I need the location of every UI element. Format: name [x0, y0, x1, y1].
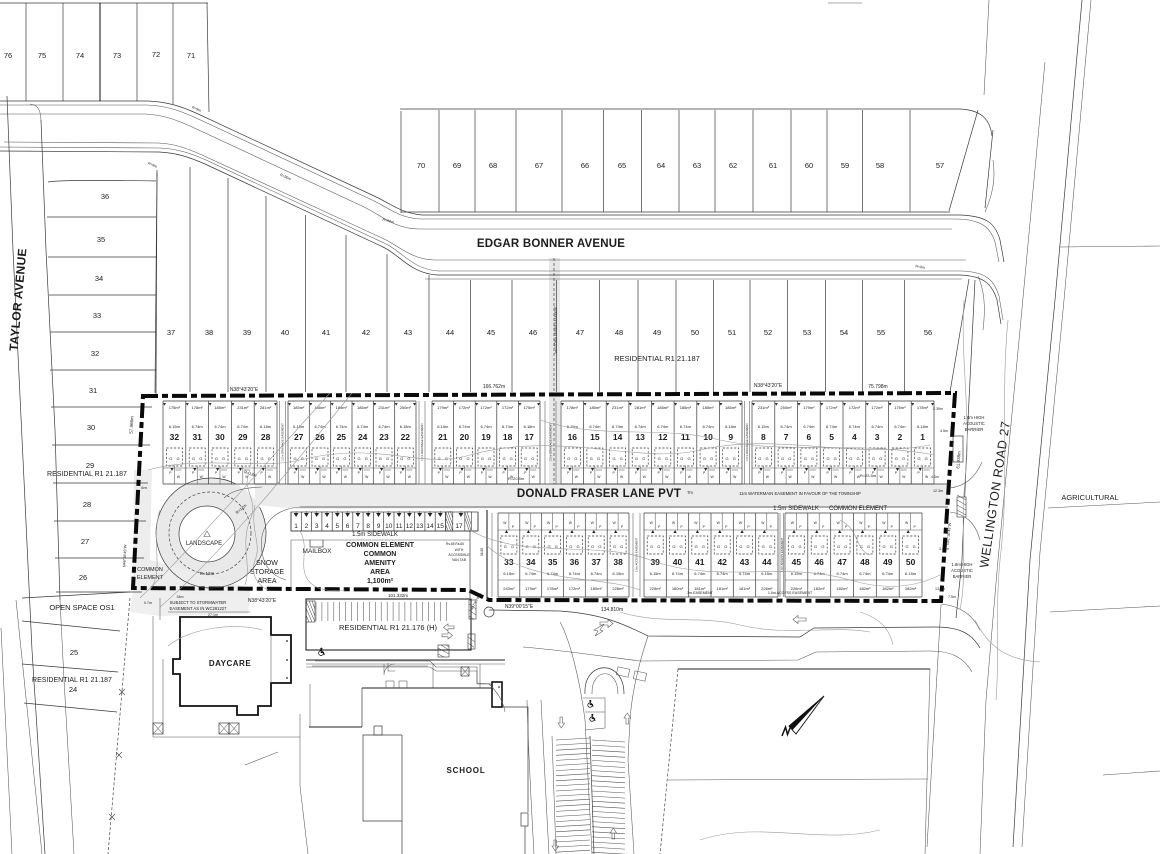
svg-text:13: 13: [635, 432, 645, 442]
svg-text:35: 35: [97, 235, 105, 244]
svg-text:G: G: [687, 456, 690, 461]
svg-text:231m²: 231m²: [237, 405, 249, 410]
svg-text:75.798m: 75.798m: [868, 384, 887, 390]
svg-text:185m²: 185m²: [589, 405, 601, 410]
svg-text:N38°43'20"E: N38°43'20"E: [754, 383, 783, 389]
svg-text:G: G: [386, 456, 389, 461]
svg-text:14: 14: [426, 523, 434, 530]
svg-text:48: 48: [615, 328, 623, 337]
svg-text:16: 16: [568, 432, 578, 442]
svg-text:53: 53: [803, 328, 811, 337]
svg-text:42: 42: [362, 328, 370, 337]
svg-text:G: G: [895, 456, 898, 461]
svg-text:65: 65: [618, 161, 626, 170]
svg-text:G: G: [765, 456, 768, 461]
svg-text:38: 38: [613, 557, 623, 567]
svg-text:36: 36: [570, 557, 580, 567]
svg-text:G: G: [844, 544, 847, 549]
svg-text:182m²: 182m²: [882, 586, 894, 591]
svg-text:G: G: [379, 456, 382, 461]
svg-text:181m²: 181m²: [717, 586, 729, 591]
svg-text:WITH: WITH: [455, 548, 464, 552]
svg-text:243m²: 243m²: [503, 586, 515, 591]
svg-text:COMMON ELEMENT: COMMON ELEMENT: [346, 542, 415, 549]
svg-text:186m²: 186m²: [725, 405, 737, 410]
svg-text:50: 50: [691, 328, 699, 337]
svg-text:R=20.5m: R=20.5m: [508, 476, 525, 481]
svg-text:63: 63: [693, 161, 701, 170]
svg-text:50: 50: [906, 557, 916, 567]
svg-text:15: 15: [437, 523, 445, 530]
svg-text:134.810m: 134.810m: [601, 607, 623, 613]
svg-text:226m²: 226m²: [612, 586, 624, 591]
svg-text:175m²: 175m²: [524, 405, 536, 410]
svg-text:67: 67: [535, 161, 543, 170]
svg-text:ACCESSIBLE: ACCESSIBLE: [448, 553, 470, 557]
svg-text:6.74m: 6.74m: [502, 424, 514, 429]
svg-text:34: 34: [526, 557, 536, 567]
svg-text:BARRIER: BARRIER: [953, 574, 972, 579]
svg-text:G: G: [524, 456, 527, 461]
svg-text:G: G: [798, 544, 801, 549]
svg-text:37: 37: [591, 557, 601, 567]
svg-text:172m²: 172m²: [826, 405, 838, 410]
svg-text:15: 15: [590, 432, 600, 442]
svg-text:G: G: [804, 456, 807, 461]
svg-text:6.18m: 6.18m: [725, 424, 737, 429]
svg-text:G: G: [733, 456, 736, 461]
svg-text:6.18m: 6.18m: [400, 424, 412, 429]
svg-text:STORAGE: STORAGE: [250, 569, 284, 576]
svg-text:22: 22: [401, 432, 411, 442]
svg-text:G: G: [294, 456, 297, 461]
svg-text:1m STORM SEWER EASEMENT: 1m STORM SEWER EASEMENT: [554, 306, 558, 354]
svg-text:54: 54: [840, 328, 848, 337]
svg-text:45: 45: [792, 557, 802, 567]
svg-text:6.74m: 6.74m: [569, 571, 581, 576]
svg-text:G: G: [301, 456, 304, 461]
svg-text:182m²: 182m²: [836, 586, 848, 591]
svg-text:27: 27: [294, 432, 304, 442]
svg-text:6.74m: 6.74m: [826, 424, 838, 429]
svg-text:7m: 7m: [687, 490, 693, 495]
svg-text:G: G: [658, 456, 661, 461]
svg-text:182m²: 182m²: [814, 586, 826, 591]
svg-text:G: G: [598, 544, 601, 549]
svg-text:ACOUSTIC: ACOUSTIC: [963, 421, 985, 426]
svg-text:G: G: [612, 456, 615, 461]
svg-text:6.74m: 6.74m: [612, 424, 624, 429]
svg-text:179m²: 179m²: [525, 586, 537, 591]
svg-text:COMMON: COMMON: [364, 551, 397, 558]
svg-text:G: G: [703, 456, 706, 461]
svg-text:70: 70: [417, 161, 425, 170]
svg-text:6: 6: [346, 523, 350, 530]
svg-text:G: G: [591, 544, 594, 549]
svg-text:23: 23: [379, 432, 389, 442]
svg-text:7.5m: 7.5m: [948, 595, 956, 599]
svg-text:G: G: [913, 544, 916, 549]
svg-text:6.74m: 6.74m: [314, 424, 326, 429]
svg-text:G: G: [531, 456, 534, 461]
svg-text:34m: 34m: [177, 595, 184, 599]
svg-text:17: 17: [524, 432, 534, 442]
svg-text:G: G: [245, 456, 248, 461]
svg-text:G: G: [917, 456, 920, 461]
svg-text:ACOUSTIC: ACOUSTIC: [951, 568, 973, 573]
svg-text:6.74m: 6.74m: [657, 424, 669, 429]
svg-text:6.15m: 6.15m: [905, 571, 917, 576]
svg-text:61: 61: [769, 161, 777, 170]
svg-text:6.74m: 6.74m: [859, 571, 871, 576]
svg-text:29: 29: [238, 432, 248, 442]
svg-text:37: 37: [167, 328, 175, 337]
svg-text:AREA: AREA: [257, 578, 276, 585]
svg-text:G: G: [365, 456, 368, 461]
svg-text:46: 46: [529, 328, 537, 337]
svg-text:71: 71: [187, 51, 195, 60]
svg-text:8: 8: [366, 523, 370, 530]
svg-text:185m²: 185m²: [657, 405, 669, 410]
svg-text:24: 24: [358, 432, 368, 442]
svg-text:6.74m: 6.74m: [694, 571, 706, 576]
svg-text:G: G: [192, 456, 195, 461]
svg-text:185m²: 185m²: [214, 405, 226, 410]
svg-text:42: 42: [717, 557, 727, 567]
svg-text:G: G: [834, 456, 837, 461]
svg-text:6.74m: 6.74m: [781, 424, 793, 429]
svg-text:G: G: [680, 456, 683, 461]
svg-text:7: 7: [784, 432, 789, 442]
svg-text:33: 33: [93, 311, 101, 320]
svg-text:12.3m: 12.3m: [933, 489, 943, 493]
svg-text:G: G: [533, 544, 536, 549]
svg-text:RESIDENTIAL R1 21.187: RESIDENTIAL R1 21.187: [47, 471, 127, 478]
svg-text:26: 26: [315, 432, 325, 442]
svg-text:64: 64: [657, 161, 665, 170]
svg-text:6.74m: 6.74m: [459, 424, 471, 429]
svg-text:G: G: [872, 456, 875, 461]
svg-text:57.966m: 57.966m: [129, 416, 135, 434]
svg-text:G: G: [695, 544, 698, 549]
svg-text:G: G: [481, 456, 484, 461]
svg-text:EDGAR BONNER AVENUE: EDGAR BONNER AVENUE: [477, 238, 625, 250]
svg-text:47: 47: [837, 557, 847, 567]
svg-text:180m²: 180m²: [591, 586, 603, 591]
svg-text:G: G: [710, 456, 713, 461]
svg-text:43: 43: [404, 328, 412, 337]
svg-text:RESIDENTIAL R1 21.176 (H): RESIDENTIAL R1 21.176 (H): [339, 623, 438, 632]
svg-text:1.5m ACCESS EASEMENT: 1.5m ACCESS EASEMENT: [780, 537, 784, 572]
svg-text:17: 17: [455, 523, 463, 530]
svg-text:19: 19: [481, 432, 491, 442]
svg-text:56: 56: [924, 328, 932, 337]
svg-text:11: 11: [396, 523, 403, 530]
svg-text:G: G: [702, 544, 705, 549]
svg-text:62: 62: [729, 161, 737, 170]
svg-text:8: 8: [761, 432, 766, 442]
svg-text:6.74m: 6.74m: [680, 424, 692, 429]
svg-text:1.5m DRAINAGE EASEMENT: 1.5m DRAINAGE EASEMENT: [281, 423, 285, 461]
svg-text:60: 60: [805, 161, 813, 170]
svg-text:G: G: [336, 456, 339, 461]
svg-text:G: G: [510, 456, 513, 461]
svg-text:18: 18: [503, 432, 513, 442]
svg-text:G: G: [590, 456, 593, 461]
svg-text:1.5m DRAINAGE EASEMENT: 1.5m DRAINAGE EASEMENT: [549, 423, 553, 461]
svg-text:G: G: [788, 456, 791, 461]
svg-text:MAILBOX: MAILBOX: [303, 548, 333, 555]
svg-text:G: G: [576, 544, 579, 549]
svg-text:G: G: [488, 456, 491, 461]
svg-text:41: 41: [695, 557, 705, 567]
svg-text:6.74m: 6.74m: [591, 571, 603, 576]
svg-text:185m²: 185m²: [293, 405, 305, 410]
svg-text:35: 35: [548, 557, 558, 567]
svg-text:1: 1: [920, 432, 925, 442]
svg-text:72: 72: [152, 50, 160, 59]
svg-text:G: G: [466, 456, 469, 461]
svg-text:COMMON ELEMENT: COMMON ELEMENT: [829, 506, 887, 512]
svg-text:6.74m: 6.74m: [894, 424, 906, 429]
svg-text:6.74m: 6.74m: [336, 424, 348, 429]
svg-text:G: G: [657, 544, 660, 549]
svg-text:G: G: [567, 456, 570, 461]
svg-text:34: 34: [95, 274, 103, 283]
svg-text:1.5m DRAINAGE EASEMENT: 1.5m DRAINAGE EASEMENT: [745, 423, 749, 461]
svg-text:6.74m: 6.74m: [589, 424, 601, 429]
svg-text:G: G: [811, 456, 814, 461]
svg-text:6.15m: 6.15m: [613, 571, 625, 576]
svg-text:25: 25: [70, 648, 78, 657]
svg-text:LANDSCAPE: LANDSCAPE: [186, 541, 222, 547]
svg-text:2: 2: [305, 523, 309, 530]
svg-text:66: 66: [581, 161, 589, 170]
svg-text:6.74m: 6.74m: [214, 424, 226, 429]
svg-text:G: G: [747, 544, 750, 549]
svg-text:74: 74: [76, 51, 84, 60]
svg-text:G: G: [569, 544, 572, 549]
svg-text:G: G: [769, 544, 772, 549]
svg-text:40: 40: [281, 328, 289, 337]
svg-text:36: 36: [101, 192, 109, 201]
svg-text:6.74m: 6.74m: [882, 571, 894, 576]
svg-text:55: 55: [877, 328, 885, 337]
svg-text:OPEN SPACE OS1: OPEN SPACE OS1: [49, 603, 114, 612]
svg-text:G: G: [504, 544, 507, 549]
svg-text:31: 31: [89, 386, 97, 395]
svg-text:51: 51: [728, 328, 736, 337]
svg-text:6.74m: 6.74m: [192, 424, 204, 429]
svg-text:12: 12: [406, 523, 414, 530]
svg-text:185m²: 185m²: [314, 405, 326, 410]
svg-text:43: 43: [740, 557, 750, 567]
svg-text:180m²: 180m²: [672, 586, 684, 591]
svg-text:6.15m: 6.15m: [169, 424, 181, 429]
svg-text:DONALD FRASER LANE PVT: DONALD FRASER LANE PVT: [517, 488, 681, 500]
svg-text:G: G: [400, 456, 403, 461]
svg-text:6.74m: 6.74m: [803, 424, 815, 429]
svg-text:6.74m: 6.74m: [378, 424, 390, 429]
svg-text:175m²: 175m²: [894, 405, 906, 410]
svg-text:172m²: 172m²: [849, 405, 861, 410]
svg-text:32: 32: [91, 349, 99, 358]
svg-text:6.15m: 6.15m: [437, 424, 449, 429]
svg-text:6.18m: 6.18m: [260, 424, 272, 429]
svg-text:231m²: 231m²: [378, 405, 390, 410]
svg-text:281m²: 281m²: [635, 405, 647, 410]
svg-text:G: G: [758, 456, 761, 461]
svg-text:6.74m: 6.74m: [672, 571, 684, 576]
svg-text:178m²: 178m²: [917, 405, 929, 410]
svg-text:250m²: 250m²: [780, 405, 792, 410]
svg-text:231m²: 231m²: [612, 405, 624, 410]
svg-text:9: 9: [728, 432, 733, 442]
svg-text:185m²: 185m²: [702, 405, 714, 410]
svg-text:172m²: 172m²: [459, 405, 471, 410]
svg-text:225m²: 225m²: [650, 586, 662, 591]
svg-text:EASEMENT AS IN WC261227: EASEMENT AS IN WC261227: [170, 606, 228, 611]
svg-text:32: 32: [170, 432, 180, 442]
svg-text:6.15m: 6.15m: [758, 424, 770, 429]
svg-text:G: G: [680, 544, 683, 549]
svg-text:30: 30: [215, 432, 225, 442]
svg-text:G: G: [238, 456, 241, 461]
svg-text:SUBJECT TO STORMWATER: SUBJECT TO STORMWATER: [170, 600, 227, 605]
svg-text:G: G: [672, 544, 675, 549]
svg-text:G: G: [905, 544, 908, 549]
svg-text:44: 44: [446, 328, 454, 337]
svg-text:Rs-65 Rs-65: Rs-65 Rs-65: [446, 542, 464, 546]
svg-text:178m²: 178m²: [567, 405, 579, 410]
svg-text:12: 12: [658, 432, 668, 442]
svg-text:1.5m ACCESS EASEMENT: 1.5m ACCESS EASEMENT: [768, 591, 813, 595]
svg-text:G: G: [502, 456, 505, 461]
svg-text:2: 2: [898, 432, 903, 442]
svg-text:G: G: [879, 456, 882, 461]
svg-text:231m²: 231m²: [758, 405, 770, 410]
svg-text:G: G: [762, 544, 765, 549]
svg-text:26: 26: [79, 573, 87, 582]
svg-text:28: 28: [261, 432, 271, 442]
svg-text:21: 21: [438, 432, 448, 442]
svg-text:G: G: [821, 544, 824, 549]
svg-text:49: 49: [653, 328, 661, 337]
svg-text:G: G: [215, 456, 218, 461]
svg-text:G: G: [635, 456, 638, 461]
svg-text:6.74m: 6.74m: [703, 424, 715, 429]
svg-text:58: 58: [876, 161, 884, 170]
svg-text:G: G: [260, 456, 263, 461]
svg-text:186m²: 186m²: [357, 405, 369, 410]
svg-text:1,100m²: 1,100m²: [367, 578, 394, 585]
svg-text:13: 13: [416, 523, 424, 530]
svg-text:SCHOOL: SCHOOL: [446, 766, 485, 775]
svg-text:G: G: [597, 456, 600, 461]
svg-text:6.18m: 6.18m: [524, 424, 536, 429]
svg-text:52: 52: [764, 328, 772, 337]
svg-text:G: G: [620, 456, 623, 461]
svg-text:3m EASEMENT: 3m EASEMENT: [687, 591, 714, 595]
svg-text:G: G: [222, 456, 225, 461]
svg-text:59: 59: [841, 161, 849, 170]
svg-text:G: G: [199, 456, 202, 461]
svg-text:172m²: 172m²: [871, 405, 883, 410]
svg-text:G: G: [620, 544, 623, 549]
svg-text:9: 9: [377, 523, 381, 530]
svg-text:G: G: [826, 456, 829, 461]
svg-text:181m²: 181m²: [739, 586, 751, 591]
svg-text:48: 48: [860, 557, 870, 567]
svg-text:73: 73: [113, 51, 121, 60]
svg-text:G: G: [781, 456, 784, 461]
svg-text:4: 4: [325, 523, 329, 530]
svg-text:175m²: 175m²: [169, 405, 181, 410]
svg-text:G: G: [169, 456, 172, 461]
svg-text:172m²: 172m²: [502, 405, 514, 410]
svg-text:75: 75: [38, 51, 46, 60]
svg-text:G: G: [856, 456, 859, 461]
svg-text:11m WATERMAIN EASEMENT IN FAVO: 11m WATERMAIN EASEMENT IN FAVOUR OF THE …: [739, 491, 861, 496]
svg-text:45: 45: [487, 328, 495, 337]
svg-text:6.18m: 6.18m: [917, 424, 929, 429]
svg-text:6.15m: 6.15m: [293, 424, 305, 429]
svg-text:44: 44: [762, 557, 772, 567]
svg-text:179m²: 179m²: [803, 405, 815, 410]
svg-text:13.5m: 13.5m: [935, 587, 945, 591]
svg-text:G: G: [890, 544, 893, 549]
svg-text:1.5m SIDEWALK: 1.5m SIDEWALK: [352, 532, 398, 538]
svg-text:G: G: [176, 456, 179, 461]
svg-text:1.5m DRAINAGE EASEMENT: 1.5m DRAINAGE EASEMENT: [420, 423, 424, 461]
svg-text:G: G: [613, 544, 616, 549]
svg-text:5: 5: [829, 432, 834, 442]
svg-text:N38°43'20"E: N38°43'20"E: [248, 598, 277, 604]
svg-text:2.39m: 2.39m: [933, 407, 943, 411]
svg-text:G: G: [814, 544, 817, 549]
svg-text:30: 30: [87, 423, 95, 432]
svg-text:27: 27: [81, 537, 89, 546]
svg-text:166.762m: 166.762m: [483, 384, 505, 390]
svg-text:G: G: [739, 544, 742, 549]
svg-text:3: 3: [875, 432, 880, 442]
svg-text:G: G: [438, 456, 441, 461]
svg-text:6.74m: 6.74m: [849, 424, 861, 429]
svg-text:29: 29: [86, 461, 94, 470]
svg-text:G: G: [642, 456, 645, 461]
svg-text:G: G: [837, 544, 840, 549]
svg-text:ELEMENT: ELEMENT: [137, 575, 164, 581]
svg-text:R=23.5m: R=23.5m: [860, 473, 877, 478]
svg-text:6.74m: 6.74m: [837, 571, 849, 576]
svg-text:G: G: [726, 456, 729, 461]
svg-text:G: G: [925, 456, 928, 461]
svg-text:G: G: [717, 544, 720, 549]
svg-text:68: 68: [489, 161, 497, 170]
svg-text:G: G: [902, 456, 905, 461]
svg-text:38: 38: [205, 328, 213, 337]
svg-text:25: 25: [337, 432, 347, 442]
svg-text:6.15m: 6.15m: [650, 571, 662, 576]
svg-text:24: 24: [69, 685, 77, 694]
svg-text:G: G: [322, 456, 325, 461]
svg-text:4.0m: 4.0m: [931, 475, 939, 479]
svg-text:47: 47: [576, 328, 584, 337]
svg-text:G: G: [358, 456, 361, 461]
svg-text:6.74m: 6.74m: [525, 571, 537, 576]
svg-text:20: 20: [460, 432, 470, 442]
svg-text:G: G: [650, 544, 653, 549]
